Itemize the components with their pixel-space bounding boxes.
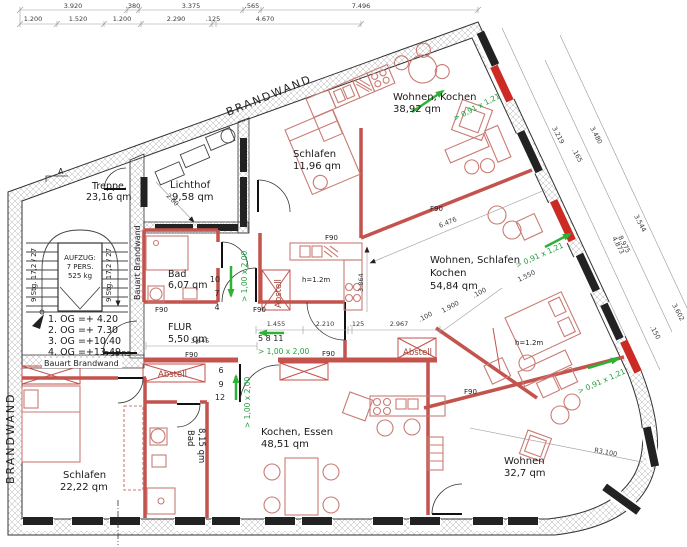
dim: 4.670 bbox=[256, 15, 275, 23]
floor-plan-drawing: BRANDWAND BRANDWAND Bauart Brandwand Bau… bbox=[0, 0, 687, 547]
f90-label: F90 bbox=[464, 388, 477, 396]
room-kochen-essen-area: 48,51 qm bbox=[261, 439, 309, 450]
dim: .125 bbox=[350, 320, 364, 328]
sofa-group-bottom bbox=[518, 350, 580, 462]
room-kochen-essen-name: Kochen, Essen bbox=[261, 427, 333, 438]
stair-flight-label: 9 Stg. 17,2 / 27 bbox=[30, 248, 38, 302]
bed-schlafen-bottom bbox=[22, 386, 80, 462]
dim: 3.375 bbox=[182, 2, 201, 10]
bed-unit2 bbox=[505, 292, 581, 360]
f90-label: F90 bbox=[322, 350, 335, 358]
room-treppe-area: 23,16 qm bbox=[86, 192, 132, 203]
abstell-label-left: Abstell bbox=[158, 370, 187, 380]
escape-door-size: > 1,00 x 2,00 bbox=[240, 250, 249, 302]
section-marker-label: A bbox=[58, 167, 64, 176]
f90-label: F90 bbox=[253, 306, 266, 314]
room-wohnen-kochen-area: 38,92 qm bbox=[393, 104, 441, 115]
dim: 3.920 bbox=[64, 2, 83, 10]
dim: 7.496 bbox=[352, 2, 371, 10]
room-schlafen-top-name: Schlafen bbox=[293, 149, 336, 160]
door-number: 9 bbox=[218, 380, 223, 389]
bad-bottom-fixtures bbox=[147, 428, 175, 514]
door-wohnen-bottom bbox=[432, 484, 462, 514]
room-bad-bottom-area: 8,15 qm bbox=[196, 428, 206, 463]
room-bad-bottom-name: Bad bbox=[185, 430, 195, 446]
door-flur-top bbox=[222, 268, 256, 302]
door-schlafen-bottom bbox=[118, 378, 143, 403]
f90-label: F90 bbox=[325, 234, 338, 242]
bauart-vertical-label: Bauart Brandwand bbox=[133, 225, 142, 300]
door-bad-bottom bbox=[177, 404, 200, 427]
dim: 2.210 bbox=[316, 320, 335, 328]
level-line-3: 3. OG =+10.40 bbox=[48, 336, 121, 347]
bauart-horizontal-label: Bauart Brandwand bbox=[44, 359, 119, 368]
dim: .165 bbox=[570, 147, 584, 164]
dim: 3.864 bbox=[357, 273, 365, 292]
bottom-unit-walls bbox=[22, 378, 207, 518]
f90-label: F90 bbox=[185, 351, 198, 359]
closet-dashed bbox=[124, 406, 143, 490]
door-number: 6 bbox=[218, 366, 223, 375]
dim: 1.200 bbox=[113, 15, 132, 23]
room-lichthof-name: Lichthof bbox=[170, 180, 211, 191]
escape-door-size: > 1,00 x 2,00 bbox=[243, 376, 252, 428]
door-number: 10 bbox=[210, 275, 220, 284]
escape-door-size: > 1,00 x 2,00 bbox=[258, 347, 310, 356]
room-wsk-area: 54,84 qm bbox=[430, 281, 478, 292]
door-number: 12 bbox=[215, 393, 225, 402]
f90-label: F90 bbox=[430, 205, 443, 213]
room-schlafen-bottom-name: Schlafen bbox=[63, 470, 106, 481]
room-schlafen-top-area: 11,96 qm bbox=[293, 161, 341, 172]
room-wsk-name2: Kochen bbox=[430, 268, 467, 279]
escape-window-size: > 0,91 x 1,21 bbox=[514, 241, 565, 270]
stair-flight-label: 9 Stg. 17,2 / 27 bbox=[105, 248, 113, 302]
escape-window-size: > 0,91 x 1,21 bbox=[576, 367, 627, 396]
abstell-label-top: Abstell bbox=[274, 279, 284, 308]
dim: 1.900 bbox=[440, 299, 460, 315]
parapet-label: h=1.2m bbox=[302, 276, 330, 284]
sofa-group-top bbox=[444, 125, 513, 184]
room-bad-top-name: Bad bbox=[168, 269, 186, 280]
f90-label: F90 bbox=[155, 306, 168, 314]
dim: 3.219 bbox=[550, 125, 566, 145]
room-treppe-name: Treppe, bbox=[91, 181, 127, 192]
room-flur-name: FLUR bbox=[168, 322, 192, 333]
room-wohnen-bottom-name: Wohnen bbox=[504, 456, 545, 467]
level-line-1: 1. OG =+ 4.20 bbox=[48, 314, 118, 325]
room-bad-top-area: 6,07 qm bbox=[168, 280, 207, 291]
elevator-line2: 7 PERS. bbox=[67, 263, 94, 271]
abstell-label-right: Abstell bbox=[403, 348, 432, 358]
door-number-right: 5 8 11 bbox=[258, 334, 283, 343]
elevator-line1: AUFZUG: bbox=[64, 254, 96, 262]
dim: 2.967 bbox=[390, 320, 409, 328]
dim: 2.290 bbox=[167, 15, 186, 23]
dim: 1.455 bbox=[267, 320, 286, 328]
dim: 3.602 bbox=[670, 302, 686, 322]
door-schlafen-top bbox=[258, 180, 290, 212]
room-wohnen-kochen-name: Wohnen, Kochen bbox=[393, 92, 476, 103]
floor-plan: BRANDWAND BRANDWAND Bauart Brandwand Bau… bbox=[0, 0, 687, 547]
dim: 1.200 bbox=[24, 15, 43, 23]
dim: .380 bbox=[126, 2, 140, 10]
wardrobe-box-hall bbox=[280, 363, 328, 380]
door-number: 4 bbox=[214, 303, 219, 312]
parapet-label: h=1.2m bbox=[515, 339, 543, 347]
room-schlafen-bottom-area: 22,22 qm bbox=[60, 482, 108, 493]
dim: .150 bbox=[648, 324, 662, 341]
elevator-line3: 525 kg bbox=[68, 272, 92, 280]
dim: 1.550 bbox=[516, 268, 536, 283]
dim: 1.520 bbox=[69, 15, 88, 23]
radius-label: R3.100 bbox=[594, 446, 618, 458]
level-line-4: 4. OG =+13.49 bbox=[48, 347, 121, 358]
dim: .100 bbox=[417, 310, 434, 324]
dim: .565 bbox=[245, 2, 259, 10]
room-wsk-name1: Wohnen, Schlafen bbox=[430, 255, 520, 266]
wardrobe-box-schlafen bbox=[22, 366, 80, 384]
room-wohnen-bottom-area: 32,7 qm bbox=[504, 468, 546, 479]
level-line-2: 2. OG =+ 7.30 bbox=[48, 325, 118, 336]
brandwand-left-label: BRANDWAND bbox=[4, 393, 17, 484]
dim: 3.544 bbox=[632, 213, 648, 233]
dim: 3.645 bbox=[191, 337, 210, 345]
dim: 3.480 bbox=[588, 125, 604, 145]
orientation-arrow-icon bbox=[32, 314, 44, 329]
dim: .125 bbox=[206, 15, 220, 23]
door-number: 7 bbox=[214, 289, 219, 298]
